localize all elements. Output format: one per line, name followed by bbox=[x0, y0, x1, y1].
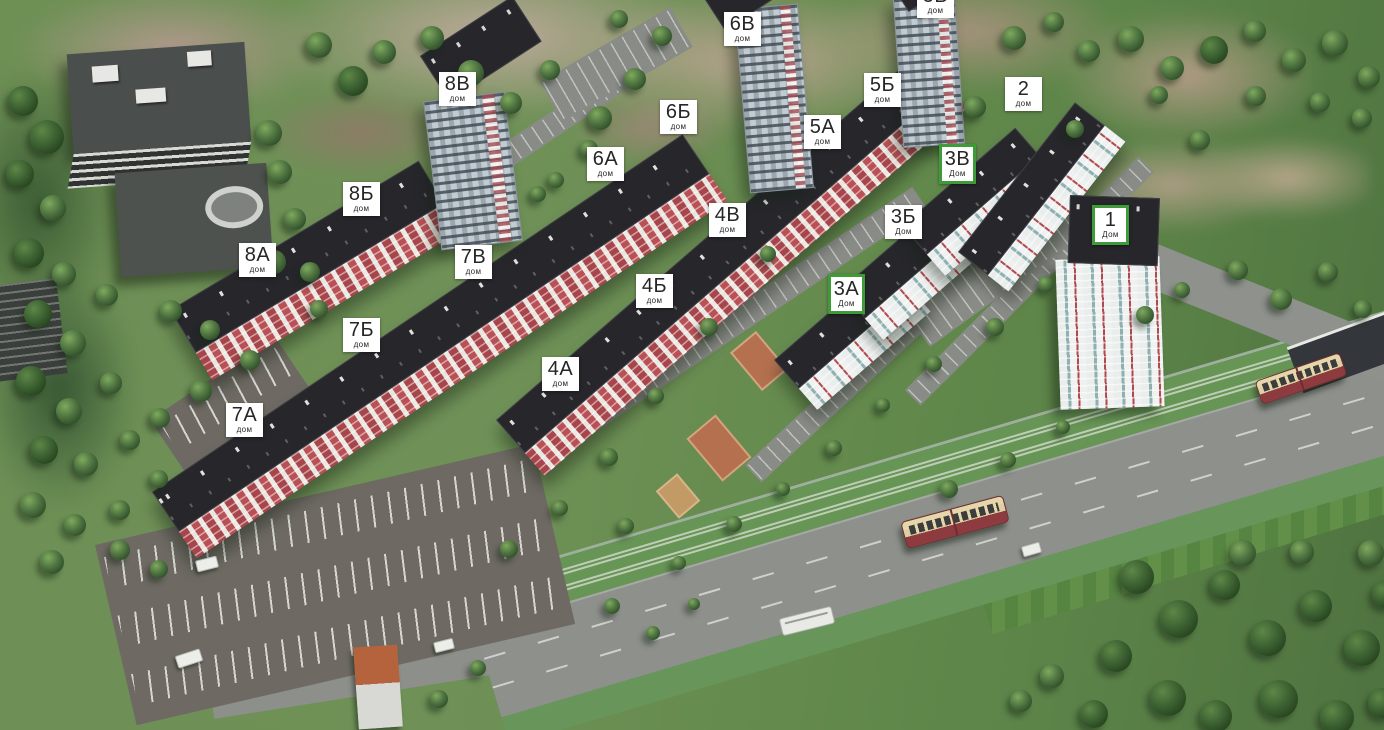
tree bbox=[986, 318, 1004, 336]
tree bbox=[588, 106, 612, 130]
building-label-4Б[interactable]: 4Бдом bbox=[636, 274, 673, 308]
building-label-4В[interactable]: 4Вдом bbox=[709, 203, 746, 237]
building-label-3Б[interactable]: 3БДом bbox=[885, 205, 922, 239]
tree bbox=[1270, 288, 1292, 310]
tree bbox=[540, 60, 560, 80]
building-number: 8Б bbox=[343, 184, 380, 205]
tree bbox=[16, 366, 46, 396]
tree bbox=[1150, 86, 1168, 104]
tree bbox=[1352, 108, 1372, 128]
building-sublabel: дом bbox=[455, 268, 492, 276]
building-sublabel: дом bbox=[439, 95, 476, 103]
building-number: 7А bbox=[226, 405, 263, 426]
tree bbox=[30, 120, 64, 154]
building-number: 5Б bbox=[864, 75, 901, 96]
tree bbox=[672, 556, 686, 570]
building-label-6А[interactable]: 6Адом bbox=[587, 147, 624, 181]
tree bbox=[646, 626, 660, 640]
building-sublabel: Дом bbox=[885, 228, 922, 236]
tree bbox=[470, 660, 486, 676]
building-label-8В[interactable]: 8Вдом bbox=[439, 72, 476, 106]
tree bbox=[64, 514, 86, 536]
building-sublabel: дом bbox=[917, 7, 954, 15]
building-sublabel: Дом bbox=[831, 300, 862, 308]
tree bbox=[430, 690, 448, 708]
tree bbox=[1160, 600, 1198, 638]
building-number: 6В bbox=[724, 14, 761, 35]
tree bbox=[1044, 12, 1064, 32]
building-number: 6А bbox=[587, 149, 624, 170]
tree bbox=[56, 398, 82, 424]
tree bbox=[530, 186, 546, 202]
tree bbox=[726, 516, 742, 532]
tree bbox=[1190, 130, 1210, 150]
building-sublabel: дом bbox=[660, 123, 697, 131]
tree bbox=[1066, 120, 1084, 138]
tree bbox=[284, 208, 306, 230]
tree bbox=[1120, 560, 1154, 594]
building-sublabel: дом bbox=[804, 138, 841, 146]
building-sublabel: дом bbox=[709, 226, 746, 234]
tree bbox=[1260, 680, 1298, 718]
tree bbox=[964, 96, 986, 118]
tree bbox=[8, 86, 38, 116]
building-sublabel: дом bbox=[226, 426, 263, 434]
building-label-7В[interactable]: 7Вдом bbox=[455, 245, 492, 279]
tree bbox=[604, 598, 620, 614]
tree bbox=[100, 372, 122, 394]
kiosk bbox=[353, 645, 403, 730]
tree bbox=[548, 172, 564, 188]
building-label-8Б[interactable]: 8Бдом bbox=[343, 182, 380, 216]
building-label-5А[interactable]: 5Адом bbox=[804, 115, 841, 149]
tree bbox=[1244, 20, 1266, 42]
tower-5v bbox=[893, 0, 965, 148]
building-label-8А[interactable]: 8Адом bbox=[239, 243, 276, 277]
tree bbox=[74, 452, 98, 476]
tree bbox=[1010, 690, 1032, 712]
tree bbox=[338, 66, 368, 96]
building-label-3А[interactable]: 3АДом bbox=[828, 274, 865, 314]
tree bbox=[6, 160, 34, 188]
building-number: 3Б bbox=[885, 207, 922, 228]
building-number: 4В bbox=[709, 205, 746, 226]
building-label-3В[interactable]: 3ВДом bbox=[939, 144, 976, 184]
building-number: 3В bbox=[942, 149, 973, 170]
building-1-body bbox=[1055, 256, 1164, 410]
building-sublabel: дом bbox=[343, 205, 380, 213]
tree bbox=[110, 540, 130, 560]
building-sublabel: дом bbox=[864, 96, 901, 104]
tree bbox=[24, 300, 52, 328]
tree bbox=[1056, 420, 1070, 434]
tree bbox=[1038, 276, 1054, 292]
roof-unit bbox=[92, 65, 119, 83]
building-label-2[interactable]: 2дом bbox=[1005, 77, 1042, 111]
roof-unit bbox=[187, 50, 212, 67]
tree bbox=[1318, 262, 1338, 282]
building-label-5В[interactable]: 5Вдом bbox=[917, 0, 954, 18]
tree bbox=[618, 518, 634, 534]
building-number: 2 bbox=[1005, 79, 1042, 100]
tree bbox=[150, 470, 168, 488]
building-label-7А[interactable]: 7Адом bbox=[226, 403, 263, 437]
tree bbox=[96, 284, 118, 306]
building-number: 1 bbox=[1095, 210, 1126, 231]
building-sublabel: дом bbox=[636, 297, 673, 305]
building-number: 4А bbox=[542, 359, 579, 380]
building-label-5Б[interactable]: 5Бдом bbox=[864, 73, 901, 107]
building-sublabel: дом bbox=[542, 380, 579, 388]
tree bbox=[120, 430, 140, 450]
building-number: 4Б bbox=[636, 276, 673, 297]
tree bbox=[150, 408, 170, 428]
office-building bbox=[67, 42, 252, 154]
tree bbox=[926, 356, 942, 372]
tree bbox=[1174, 282, 1190, 298]
tree bbox=[1322, 30, 1348, 56]
tree bbox=[826, 440, 842, 456]
tree bbox=[160, 300, 182, 322]
building-number: 7В bbox=[455, 247, 492, 268]
tree bbox=[1282, 48, 1306, 72]
building-sublabel: дом bbox=[1005, 100, 1042, 108]
tree bbox=[20, 492, 46, 518]
tree bbox=[1250, 620, 1286, 656]
tree bbox=[1354, 300, 1372, 318]
building-number: 3А bbox=[831, 279, 862, 300]
building-number: 8А bbox=[239, 245, 276, 266]
tree bbox=[1246, 86, 1266, 106]
tree bbox=[1320, 700, 1354, 730]
tree bbox=[624, 68, 646, 90]
tree bbox=[240, 350, 260, 370]
tree bbox=[776, 482, 790, 496]
tree bbox=[40, 550, 64, 574]
tree bbox=[1210, 570, 1240, 600]
building-number: 6Б bbox=[660, 102, 697, 123]
tree bbox=[300, 262, 320, 282]
tree bbox=[310, 300, 328, 318]
tree bbox=[14, 238, 44, 268]
tree bbox=[1078, 40, 1100, 62]
building-number: 8В bbox=[439, 74, 476, 95]
building-sublabel: дом bbox=[724, 35, 761, 43]
tree bbox=[600, 448, 618, 466]
tree bbox=[610, 10, 628, 28]
tree bbox=[1230, 540, 1256, 566]
tree bbox=[1200, 36, 1228, 64]
tree bbox=[1358, 66, 1380, 88]
tree bbox=[150, 560, 168, 578]
building-sublabel: Дом bbox=[1095, 231, 1126, 239]
tree bbox=[552, 500, 568, 516]
building-sublabel: дом bbox=[239, 266, 276, 274]
tree bbox=[1160, 56, 1184, 80]
tree bbox=[52, 262, 76, 286]
tree bbox=[1100, 640, 1132, 672]
tree bbox=[60, 330, 86, 356]
tree bbox=[1200, 700, 1232, 730]
building-label-6В[interactable]: 6Вдом bbox=[724, 12, 761, 46]
building-label-1[interactable]: 1Дом bbox=[1092, 205, 1129, 245]
garage-ramp bbox=[204, 184, 265, 230]
tree bbox=[1344, 630, 1380, 666]
tree bbox=[1290, 540, 1314, 564]
tree bbox=[500, 92, 522, 114]
tree bbox=[688, 598, 700, 610]
building-number: 7Б bbox=[343, 320, 380, 341]
tree bbox=[648, 388, 664, 404]
tree bbox=[268, 160, 292, 184]
building-label-7Б[interactable]: 7Бдом bbox=[343, 318, 380, 352]
tree bbox=[1000, 452, 1016, 468]
tree bbox=[40, 195, 66, 221]
roof-unit bbox=[135, 88, 166, 104]
tree bbox=[420, 26, 444, 50]
masterplan-scene: 5Вдом6Вдом8Вдом5Бдом2дом6Бдом5Адом3ВДом6… bbox=[0, 0, 1384, 730]
tree bbox=[1358, 540, 1384, 566]
tree bbox=[1150, 680, 1186, 716]
tree bbox=[110, 500, 130, 520]
building-number: 5А bbox=[804, 117, 841, 138]
tree bbox=[372, 40, 396, 64]
tree bbox=[652, 26, 672, 46]
tree bbox=[700, 318, 718, 336]
tree bbox=[760, 246, 776, 262]
tree bbox=[500, 540, 518, 558]
building-label-4А[interactable]: 4Адом bbox=[542, 357, 579, 391]
tree bbox=[200, 320, 220, 340]
tree bbox=[30, 436, 58, 464]
tree bbox=[306, 32, 332, 58]
building-sublabel: дом bbox=[587, 170, 624, 178]
tree bbox=[1040, 664, 1064, 688]
tree bbox=[1080, 700, 1108, 728]
tree bbox=[1310, 92, 1330, 112]
tree bbox=[1300, 590, 1332, 622]
tree bbox=[1002, 26, 1026, 50]
tree bbox=[876, 398, 890, 412]
tree bbox=[940, 480, 958, 498]
tree bbox=[1228, 260, 1248, 280]
building-sublabel: Дом bbox=[942, 170, 973, 178]
tree bbox=[190, 380, 212, 402]
building-sublabel: дом bbox=[343, 341, 380, 349]
tree bbox=[256, 120, 282, 146]
building-label-6Б[interactable]: 6Бдом bbox=[660, 100, 697, 134]
tree bbox=[1136, 306, 1154, 324]
tree bbox=[1118, 26, 1144, 52]
